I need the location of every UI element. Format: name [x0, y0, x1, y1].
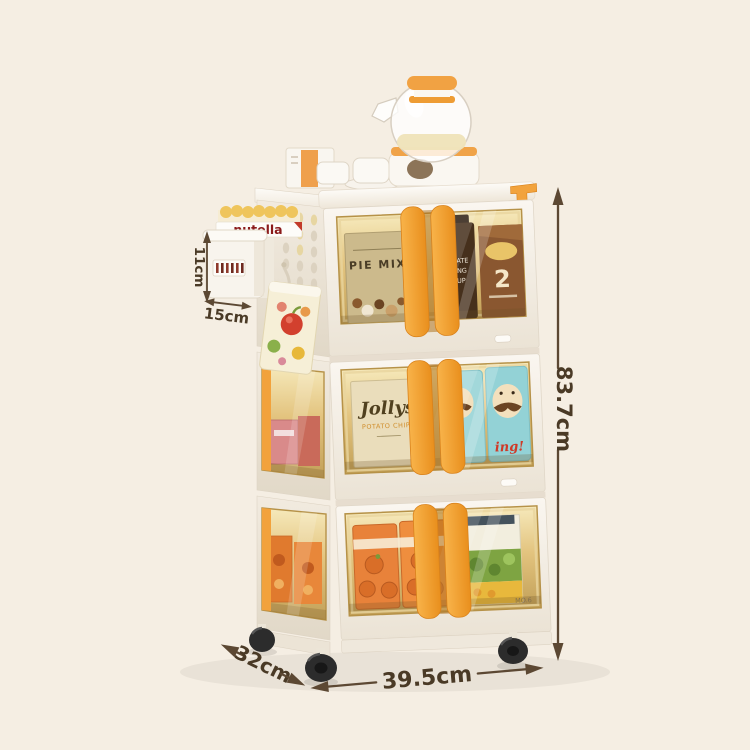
chips-brand-label: Jollys: [357, 397, 416, 420]
product-image: nutella: [0, 0, 750, 750]
tea-liquid: [397, 134, 466, 150]
door-latch: [495, 335, 511, 343]
scene-svg: nutella: [0, 0, 750, 750]
cart-front: PIE MIX LATE ING UP 2: [319, 182, 556, 654]
tier-3-handle: [413, 503, 472, 619]
tier-2-handle: [407, 359, 466, 475]
pie-mix-label: PIE MIX: [349, 257, 407, 272]
side-door-hinge-strip: [262, 366, 271, 471]
side-door-hinge-strip: [262, 508, 271, 611]
height-label: 83.7cm: [552, 366, 576, 452]
teapot-lid: [407, 76, 457, 103]
cup: [317, 162, 349, 184]
basket-height-label: 11cm: [191, 247, 207, 288]
cocoa-box-digit: 2: [493, 265, 511, 294]
tier-1-handle: [400, 205, 459, 337]
can-script-label: ing!: [495, 439, 525, 455]
door-latch: [501, 479, 517, 487]
cup: [353, 158, 389, 183]
tier-2: Jollys POTATO CHIPS ing!: [330, 354, 546, 501]
tier-1: PIE MIX LATE ING UP 2: [323, 200, 539, 357]
tier-3: MO.6: [336, 497, 551, 640]
side-basket: [203, 230, 267, 298]
side-window-bottom: [257, 496, 330, 640]
syrup-text-3: UP: [457, 277, 466, 285]
side-window-middle: [257, 352, 330, 500]
